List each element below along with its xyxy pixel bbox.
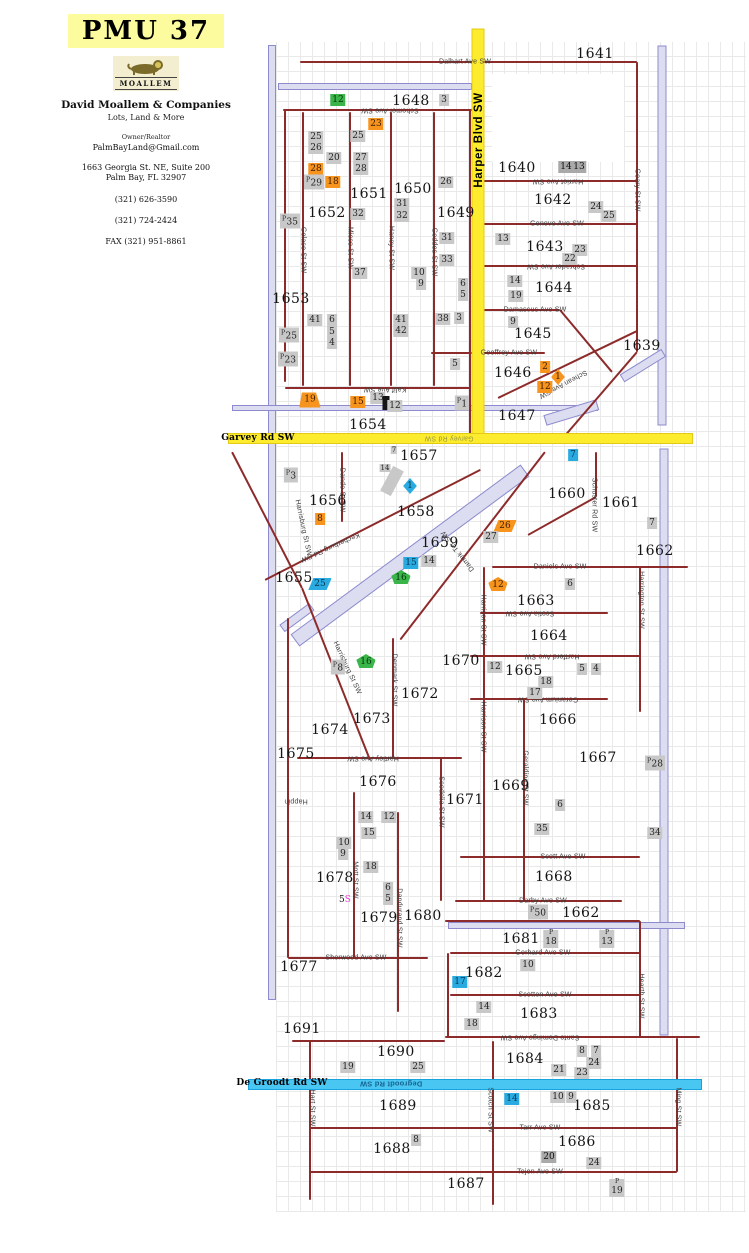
block-number: 1690 [377,1044,415,1060]
lot-marker: 26 [308,142,323,154]
lot-marker: P13 [599,930,614,948]
lot-marker: 28 [308,163,323,175]
canal [448,922,685,929]
block-number: 1674 [311,722,349,738]
lot-marker: 22 [562,253,577,265]
lot-marker: 32 [350,208,365,220]
block-number: 1641 [576,46,614,62]
pmu-map-page: Dalhart Ave SWSchomer Ave SWHarriet Ave … [0,0,749,1253]
lot-marker: 7 [391,446,397,454]
lot-marker: 2 [540,361,550,373]
street-label: Damascus Ave SW [504,307,567,314]
street-label: Harriet Ave SW [533,178,584,185]
lot-marker: 9 [566,1091,576,1103]
block-number: 1662 [636,543,674,559]
lot-marker: 23 [368,118,383,130]
lot-marker: 12 [537,381,552,393]
block-number: 1686 [558,1134,596,1150]
block-number: 1672 [401,686,439,702]
block-number: 1649 [437,205,475,221]
lot-marker: 19 [508,290,523,302]
lot-marker: 25 [350,130,365,142]
lot-marker: P25 [279,328,299,343]
block-number: 1640 [498,160,536,176]
street-label: Denmark St SW [391,654,398,707]
block-number: 1671 [446,792,484,808]
block-number: 1655 [275,570,313,586]
lot-marker: 24 [586,1157,601,1169]
lot-marker: 13 [495,233,510,245]
block-number: 1657 [400,448,438,464]
lot-marker: 15 [361,827,376,839]
canal [278,83,472,90]
canal [232,405,598,411]
street-label: Gerhard Ave SW [515,950,570,957]
lot-marker: 17 [452,976,467,988]
company-name: David Moallem & Companies [56,99,236,111]
lot-marker: 5 [577,663,587,675]
lot-marker: 35 [534,823,549,835]
block-number: 1648 [392,93,430,109]
lot-marker: 33 [439,254,454,266]
street-label: Scotten Ave SW [518,992,571,999]
block-number: 1681 [502,931,540,947]
lot-marker: P28 [645,756,665,771]
lot-marker: 12 [381,811,396,823]
logo-brand: MOALLEM [115,77,177,90]
unplatted-parcel [492,74,624,162]
block-number: 1647 [498,408,536,424]
block-number: 1688 [373,1141,411,1157]
info-panel: PMU 37 MOALLEM David Moallem & Companies… [56,14,236,246]
street-label: Garvey Rd SW [424,435,473,442]
block-number: 1677 [280,959,318,975]
block-number: 1653 [272,291,310,307]
street-segment [287,618,289,958]
block-number: 1661 [602,495,640,511]
lot-marker: 7 [568,449,578,461]
lot-marker: 14 [504,1093,519,1105]
lot-marker: 37 [352,267,367,279]
street-segment [447,953,449,1037]
lot-marker: 3 [439,94,449,106]
phone-secondary: (321) 724-2424 [56,216,236,225]
block-number: 1654 [349,417,387,433]
block-number: 1659 [421,535,459,551]
street-segment [292,1040,445,1042]
lot-marker: 4 [591,663,601,675]
block-number: 1682 [465,965,503,981]
street-label: Sherwood Ave SW [325,955,386,962]
street-label: Hearth St SW [638,973,645,1018]
lot-marker: 20 [541,1151,556,1163]
page-title: PMU 37 [68,14,224,48]
street-label: Scotia Ave SW [506,610,555,617]
owner-role: Owner/Realtor [56,133,236,141]
lot-marker: P1 [455,396,469,411]
street-label: Genevo Ave SW [530,221,584,228]
lot-marker: 12 [487,661,502,673]
company-tagline: Lots, Land & More [56,113,236,122]
street-label: Tarr Ave SW [520,1125,561,1132]
lot-marker: 7 [591,1045,601,1057]
block-number: 1660 [548,486,586,502]
lot-marker: 14 [358,811,373,823]
street-segment [310,1171,677,1173]
lot-marker: 12 [387,400,402,412]
street-label: Geoffrey Ave SW [481,350,537,357]
lot-marker: 5S [337,894,353,906]
block-number: 1669 [492,778,530,794]
street-label: Ming St SW [675,1088,682,1127]
lot-marker: P23 [278,352,298,367]
lot-marker: 25 [601,210,616,222]
phone-primary: (321) 626-3590 [56,195,236,204]
lot-marker: 7 [647,517,657,529]
block-number: 1673 [353,711,391,727]
street-label: Garvey Rd SW [221,433,295,443]
block-number: 1652 [308,205,346,221]
block-number: 1670 [442,653,480,669]
contact-email: PalmBayLand@Gmail.com [56,143,236,152]
lion-icon [123,58,169,76]
block-number: 1684 [506,1051,544,1067]
street-label: Haney St SW [388,226,395,270]
lot-marker: 38 [435,313,450,325]
street-label: Gelaso St SW [300,227,307,273]
lot-marker: 14 [421,555,436,567]
block-number: 1651 [350,186,388,202]
street-label: Happin [284,798,307,805]
lot-marker: 42 [393,325,408,337]
lot-marker: 5 [383,893,393,905]
block-number: 1667 [579,750,617,766]
address-line2: Palm Bay, FL 32907 [56,173,236,183]
street-label: Darby Ave SW [519,898,567,905]
block-number: 1650 [394,181,432,197]
block-number: 1658 [397,504,435,520]
block-number: 1645 [514,326,552,342]
lot-marker: 9 [508,316,518,328]
lot-marker: 31 [394,198,409,210]
street-label: Hart St SW [309,1089,316,1126]
lot-marker: 27 [483,531,498,543]
street-label: Harrington St SW [638,571,645,629]
block-number: 1679 [360,910,398,926]
lot-marker: 31 [439,232,454,244]
moallem-logo: MOALLEM [113,56,179,91]
lot-marker: 9 [416,278,426,290]
lot-marker: 15 [350,396,365,408]
block-number: 1678 [316,870,354,886]
block-number: 1676 [359,774,397,790]
lot-marker: P50 [528,905,548,920]
lot-marker: 26 [438,176,453,188]
lot-marker: 4 [327,337,337,349]
lot-marker: P35 [280,214,300,229]
block-number: 1691 [283,1021,321,1037]
lot-marker: 8 [577,1045,587,1057]
lot-marker: 12 [330,94,345,106]
street-label: De Groodt Rd SW [236,1078,327,1088]
block-number: 1685 [573,1098,611,1114]
lot-marker: 13 [571,161,586,173]
lot-marker: 28 [353,163,368,175]
canal [658,45,667,425]
street-label: Scotch St SW [487,1087,494,1133]
lot-marker: 18 [325,176,340,188]
street-label: Harper Blvd SW [473,92,485,187]
lot-marker: 6 [327,314,337,326]
street-label: Tejon Ave SW [517,1169,563,1176]
address-line1: 1663 Georgia St. NE, Suite 200 [56,163,236,173]
lot-marker: 6 [555,799,565,811]
lot-marker: 25 [410,1061,425,1073]
street-label: Geary St SW [634,168,641,211]
lot-marker: P18 [543,930,558,948]
street-label: Scott Ave SW [540,854,585,861]
street-segment [492,566,688,568]
lot-marker: 5 [450,358,460,370]
lot-marker: 9 [338,848,348,860]
lot-marker: 3 [454,312,464,324]
street-label: Harrison St SW [480,701,487,752]
block-number: 1646 [494,365,532,381]
block-number: 1639 [623,338,661,354]
lot-marker: P19 [609,1179,624,1197]
lot-marker: P3 [284,468,298,483]
block-number: 1663 [517,593,555,609]
street-segment [445,920,640,922]
lot-marker: 41 [307,314,322,326]
block-number: 1662 [562,905,600,921]
block-number: 1687 [447,1176,485,1192]
block-number: 1643 [526,239,564,255]
street-label: Harrison St SW [480,594,487,645]
block-number: 1664 [530,628,568,644]
street-label: Degroodt Rd SW [360,1080,422,1089]
street-label: Santo Domingo Ave SW [501,1034,580,1041]
street-label: Hartford Ave SW [524,653,579,660]
lot-marker: 19 [340,1061,355,1073]
lot-marker: 34 [647,827,662,839]
lot-marker: 14 [380,464,391,472]
lot-marker: 21 [551,1064,566,1076]
lot-marker: 20 [326,152,341,164]
street-label: Geddes St SW [431,228,438,277]
street-label: Scodelia St SW [438,776,445,827]
lot-marker: 15 [403,557,418,569]
lot-marker: 8 [411,1134,421,1146]
block-number: 1644 [535,280,573,296]
lot-marker: 6 [565,578,575,590]
lot-marker: 14 [507,275,522,287]
lot-marker: 10 [520,959,535,971]
street-label: Dalhart Ave SW [439,59,491,66]
street-label: Hartley Ave SW [347,755,399,762]
block-number: 1675 [277,746,315,762]
fax-number: FAX (321) 951-8861 [56,237,236,246]
block-number: 1668 [535,869,573,885]
block-number: 1642 [534,192,572,208]
lot-marker: P29 [304,175,324,190]
lot-marker: 32 [394,210,409,222]
street-label: Schuster Rd SW [591,478,598,533]
lot-marker: 14 [476,1001,491,1013]
block-number: 1656 [309,493,347,509]
lot-marker: P8 [331,660,345,675]
canal [660,448,669,1035]
lot-marker: 8 [315,513,325,525]
block-number: 1680 [404,908,442,924]
major-road [472,28,485,438]
lot-marker: 17 [527,687,542,699]
block-number: 1666 [539,712,577,728]
lot-marker: 5 [458,289,468,301]
lot-marker: 23 [574,1067,589,1079]
block-number: 1689 [379,1098,417,1114]
street-label: Daniels Ave SW [534,564,587,571]
street-segment [310,1127,677,1129]
block-number: 1665 [505,663,543,679]
block-number: 1683 [520,1006,558,1022]
lot-marker: 18 [363,861,378,873]
lot-marker: 18 [464,1018,479,1030]
street-label: Micco St SW [347,227,354,269]
lot-marker: 10 [550,1091,565,1103]
